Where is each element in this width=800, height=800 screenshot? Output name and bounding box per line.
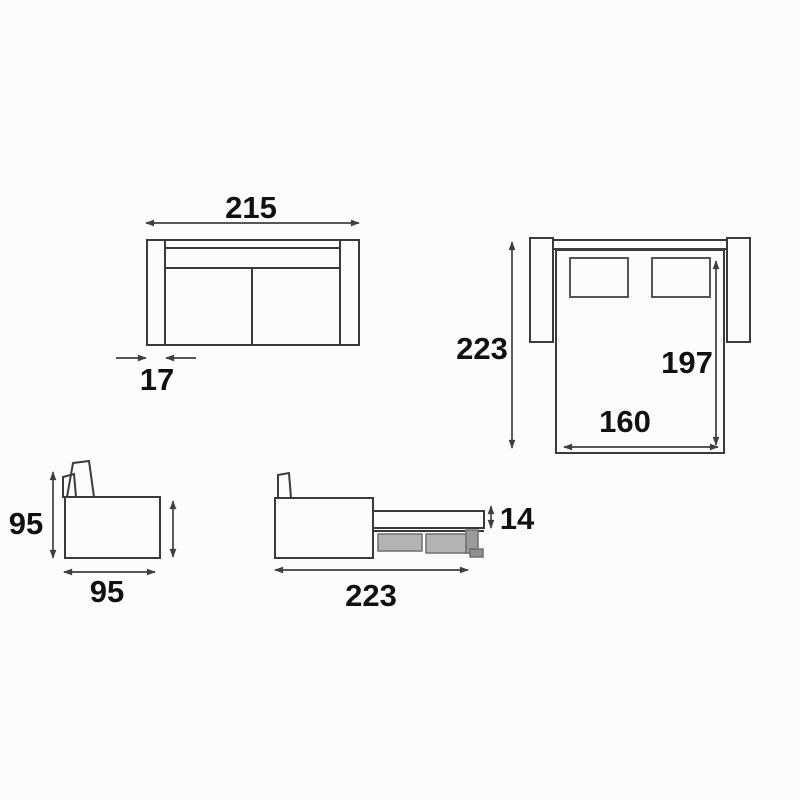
bed-left-armrest [530,238,553,342]
mattress-length-label: 197 [661,345,713,380]
side-view-closed: 95 95 [9,461,173,609]
diagram-svg: 215 17 223 197 160 95 95 [0,0,800,800]
armrest-width-label: 17 [140,362,174,397]
front-width-label: 215 [225,190,277,225]
mattress-width-label: 160 [599,404,651,439]
open-mattress-platform [373,511,484,528]
sofa-height-label: 95 [9,506,43,541]
front-view: 215 17 [116,190,359,397]
side-sofa-body [65,497,160,558]
bed-support-foot [470,549,483,557]
bed-pillow-left [570,258,628,297]
bed-right-armrest [727,238,750,342]
sofa-depth-label: 95 [90,574,124,609]
side-view-opened: 14 223 [275,473,535,613]
open-depth-label: 223 [345,578,397,613]
open-sofa-body [275,498,373,558]
bed-backrest-bar [553,240,727,249]
bed-pillow-right [652,258,710,297]
folded-mechanism-box-1 [378,534,422,551]
sofa-bed-dimension-diagram: 215 17 223 197 160 95 95 [0,0,800,800]
bed-top-view: 223 197 160 [456,238,750,453]
bed-depth-label: 223 [456,331,508,366]
mattress-thickness-label: 14 [500,501,535,536]
side-backrest-cushion [67,461,94,497]
open-backrest-flap [278,473,291,498]
